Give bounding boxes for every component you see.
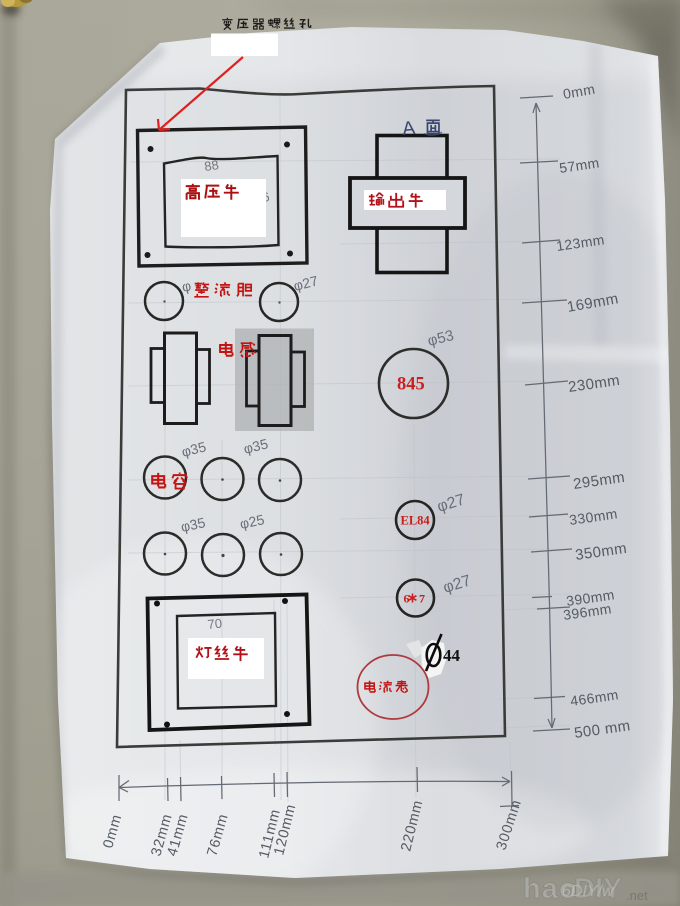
svg-text:44: 44 — [443, 646, 461, 665]
svg-text:88: 88 — [203, 157, 219, 174]
svg-text:6: 6 — [404, 592, 410, 606]
svg-text:6DIY/w: 6DIY/w — [562, 883, 615, 900]
svg-text:EL84: EL84 — [401, 514, 431, 528]
svg-text:A: A — [401, 118, 416, 140]
svg-text:845: 845 — [397, 375, 425, 395]
svg-text:70: 70 — [207, 616, 223, 632]
svg-text:7: 7 — [419, 592, 425, 606]
svg-text:.net: .net — [626, 888, 648, 903]
